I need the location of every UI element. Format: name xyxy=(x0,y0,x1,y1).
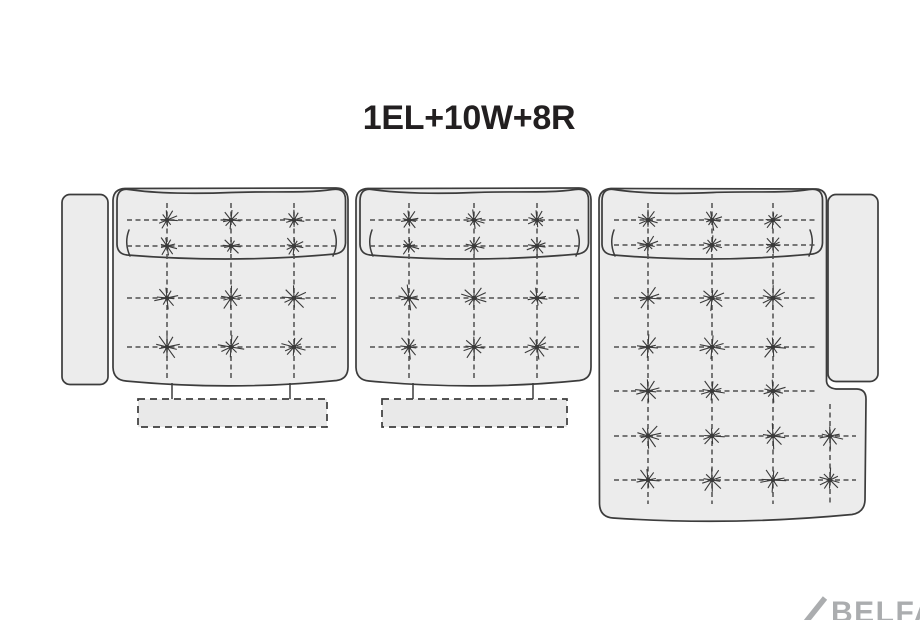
configuration-title: 1EL+10W+8R xyxy=(363,99,575,137)
sofa-configuration-page: 1EL+10W+8R BELFA xyxy=(0,0,920,620)
armrest-left-outline xyxy=(62,195,108,385)
sofa-diagram: 1EL+10W+8R BELFA xyxy=(0,0,920,620)
footrest-outline xyxy=(382,399,567,427)
footrest-outline xyxy=(138,399,327,427)
watermark-slash-mark xyxy=(805,598,825,620)
brand-watermark: BELFA xyxy=(805,596,920,620)
footrest-layer xyxy=(138,383,567,427)
armrest-right-outline xyxy=(828,195,878,382)
watermark-text: BELFA xyxy=(831,596,920,620)
